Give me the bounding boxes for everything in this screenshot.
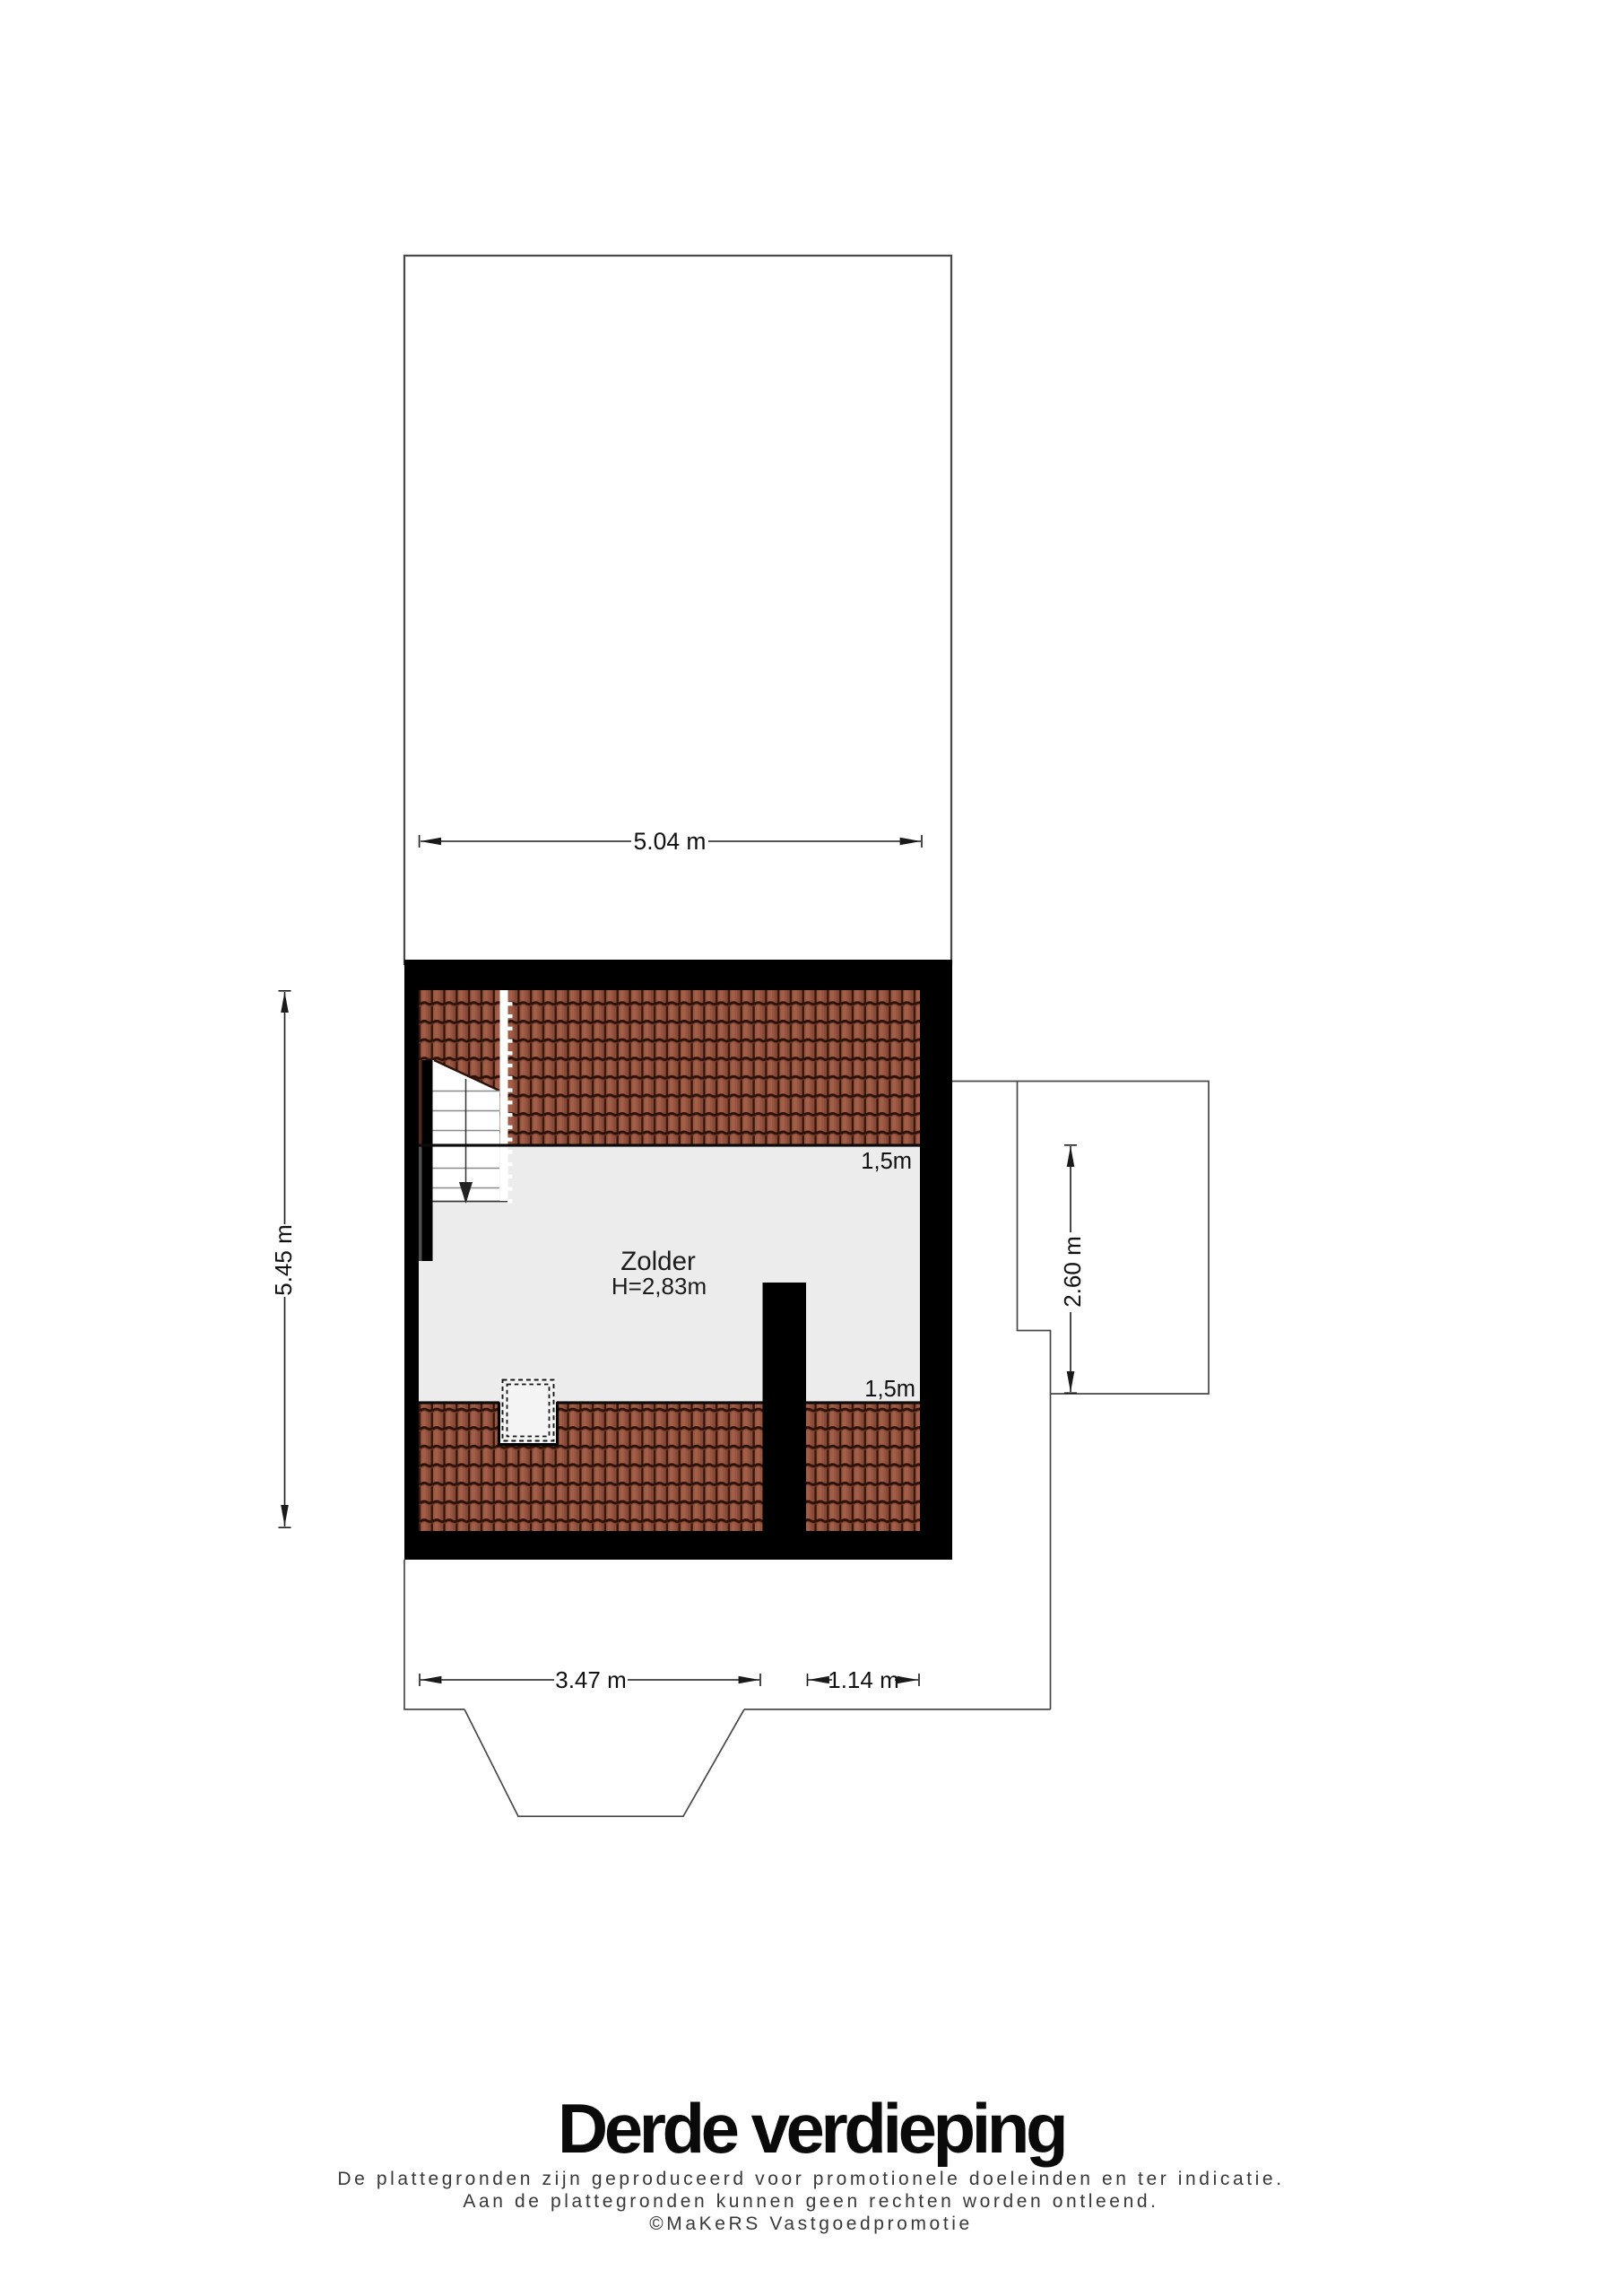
- svg-text:2.60 m: 2.60 m: [1059, 1236, 1086, 1308]
- svg-text:1,5m: 1,5m: [864, 1377, 915, 1402]
- svg-text:1.14 m: 1.14 m: [828, 1666, 899, 1693]
- svg-text:3.47 m: 3.47 m: [555, 1666, 627, 1693]
- svg-text:5.45 m: 5.45 m: [270, 1224, 297, 1296]
- svg-text:H=2,83m: H=2,83m: [612, 1273, 707, 1300]
- svg-text:1,5m: 1,5m: [861, 1149, 912, 1174]
- svg-text:5.04 m: 5.04 m: [633, 828, 706, 855]
